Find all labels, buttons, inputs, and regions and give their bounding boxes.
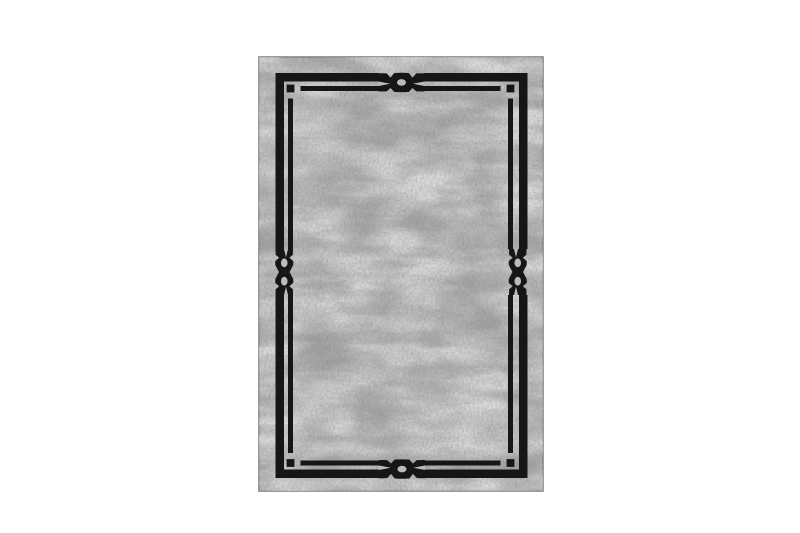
knot-motif-top bbox=[379, 73, 425, 92]
corner-square-top-right bbox=[507, 85, 515, 93]
corner-square-bottom-right bbox=[507, 459, 515, 467]
rug bbox=[258, 57, 543, 491]
rug-product-photo bbox=[0, 0, 800, 533]
rug-texture bbox=[258, 57, 543, 491]
corner-square-bottom-left bbox=[287, 459, 295, 467]
corner-square-top-left bbox=[287, 85, 295, 93]
product-image-canvas bbox=[0, 0, 800, 533]
knot-motif-bottom bbox=[379, 459, 425, 478]
